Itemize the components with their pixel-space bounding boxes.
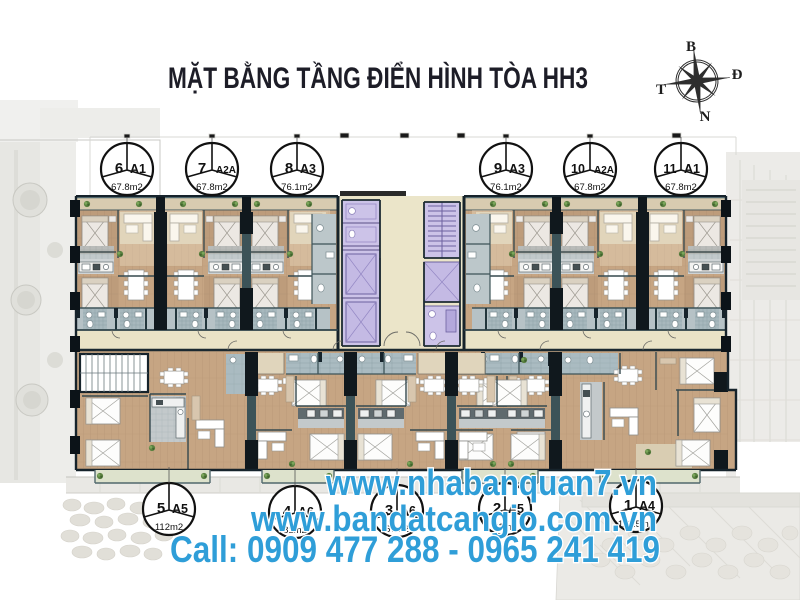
svg-text:A2A: A2A bbox=[594, 165, 614, 176]
svg-text:10: 10 bbox=[571, 162, 585, 176]
svg-text:8: 8 bbox=[285, 160, 293, 177]
svg-text:11: 11 bbox=[663, 162, 676, 176]
svg-text:76.1m2: 76.1m2 bbox=[281, 182, 313, 193]
svg-text:7: 7 bbox=[198, 160, 206, 177]
svg-text:A2A: A2A bbox=[216, 165, 236, 176]
svg-text:67.8m2: 67.8m2 bbox=[196, 182, 228, 193]
svg-text:T: T bbox=[656, 82, 666, 98]
svg-text:A5: A5 bbox=[172, 502, 188, 516]
svg-text:A3: A3 bbox=[300, 162, 316, 176]
svg-text:6: 6 bbox=[115, 160, 123, 177]
svg-text:67.8m2: 67.8m2 bbox=[665, 182, 697, 193]
svg-text:Đ: Đ bbox=[732, 67, 743, 83]
svg-text:A3: A3 bbox=[509, 162, 525, 176]
svg-text:A1: A1 bbox=[684, 162, 700, 176]
svg-text:www.nhabanquan7.vn: www.nhabanquan7.vn bbox=[325, 462, 657, 503]
svg-text:5: 5 bbox=[157, 500, 165, 517]
svg-text:76.1m2: 76.1m2 bbox=[490, 182, 522, 193]
svg-text:9: 9 bbox=[494, 160, 502, 177]
svg-text:A1: A1 bbox=[130, 162, 146, 176]
svg-text:67.8m2: 67.8m2 bbox=[574, 182, 606, 193]
svg-text:67.8m2: 67.8m2 bbox=[111, 182, 143, 193]
svg-text:N: N bbox=[700, 109, 711, 125]
svg-text:MẶT BẰNG TẦNG ĐIỂN HÌNH TÒA HH: MẶT BẰNG TẦNG ĐIỂN HÌNH TÒA HH3 bbox=[168, 61, 588, 95]
svg-text:B: B bbox=[686, 39, 696, 55]
svg-text:Call: 0909 477 288 - 0965 241: Call: 0909 477 288 - 0965 241 419 bbox=[170, 529, 660, 570]
